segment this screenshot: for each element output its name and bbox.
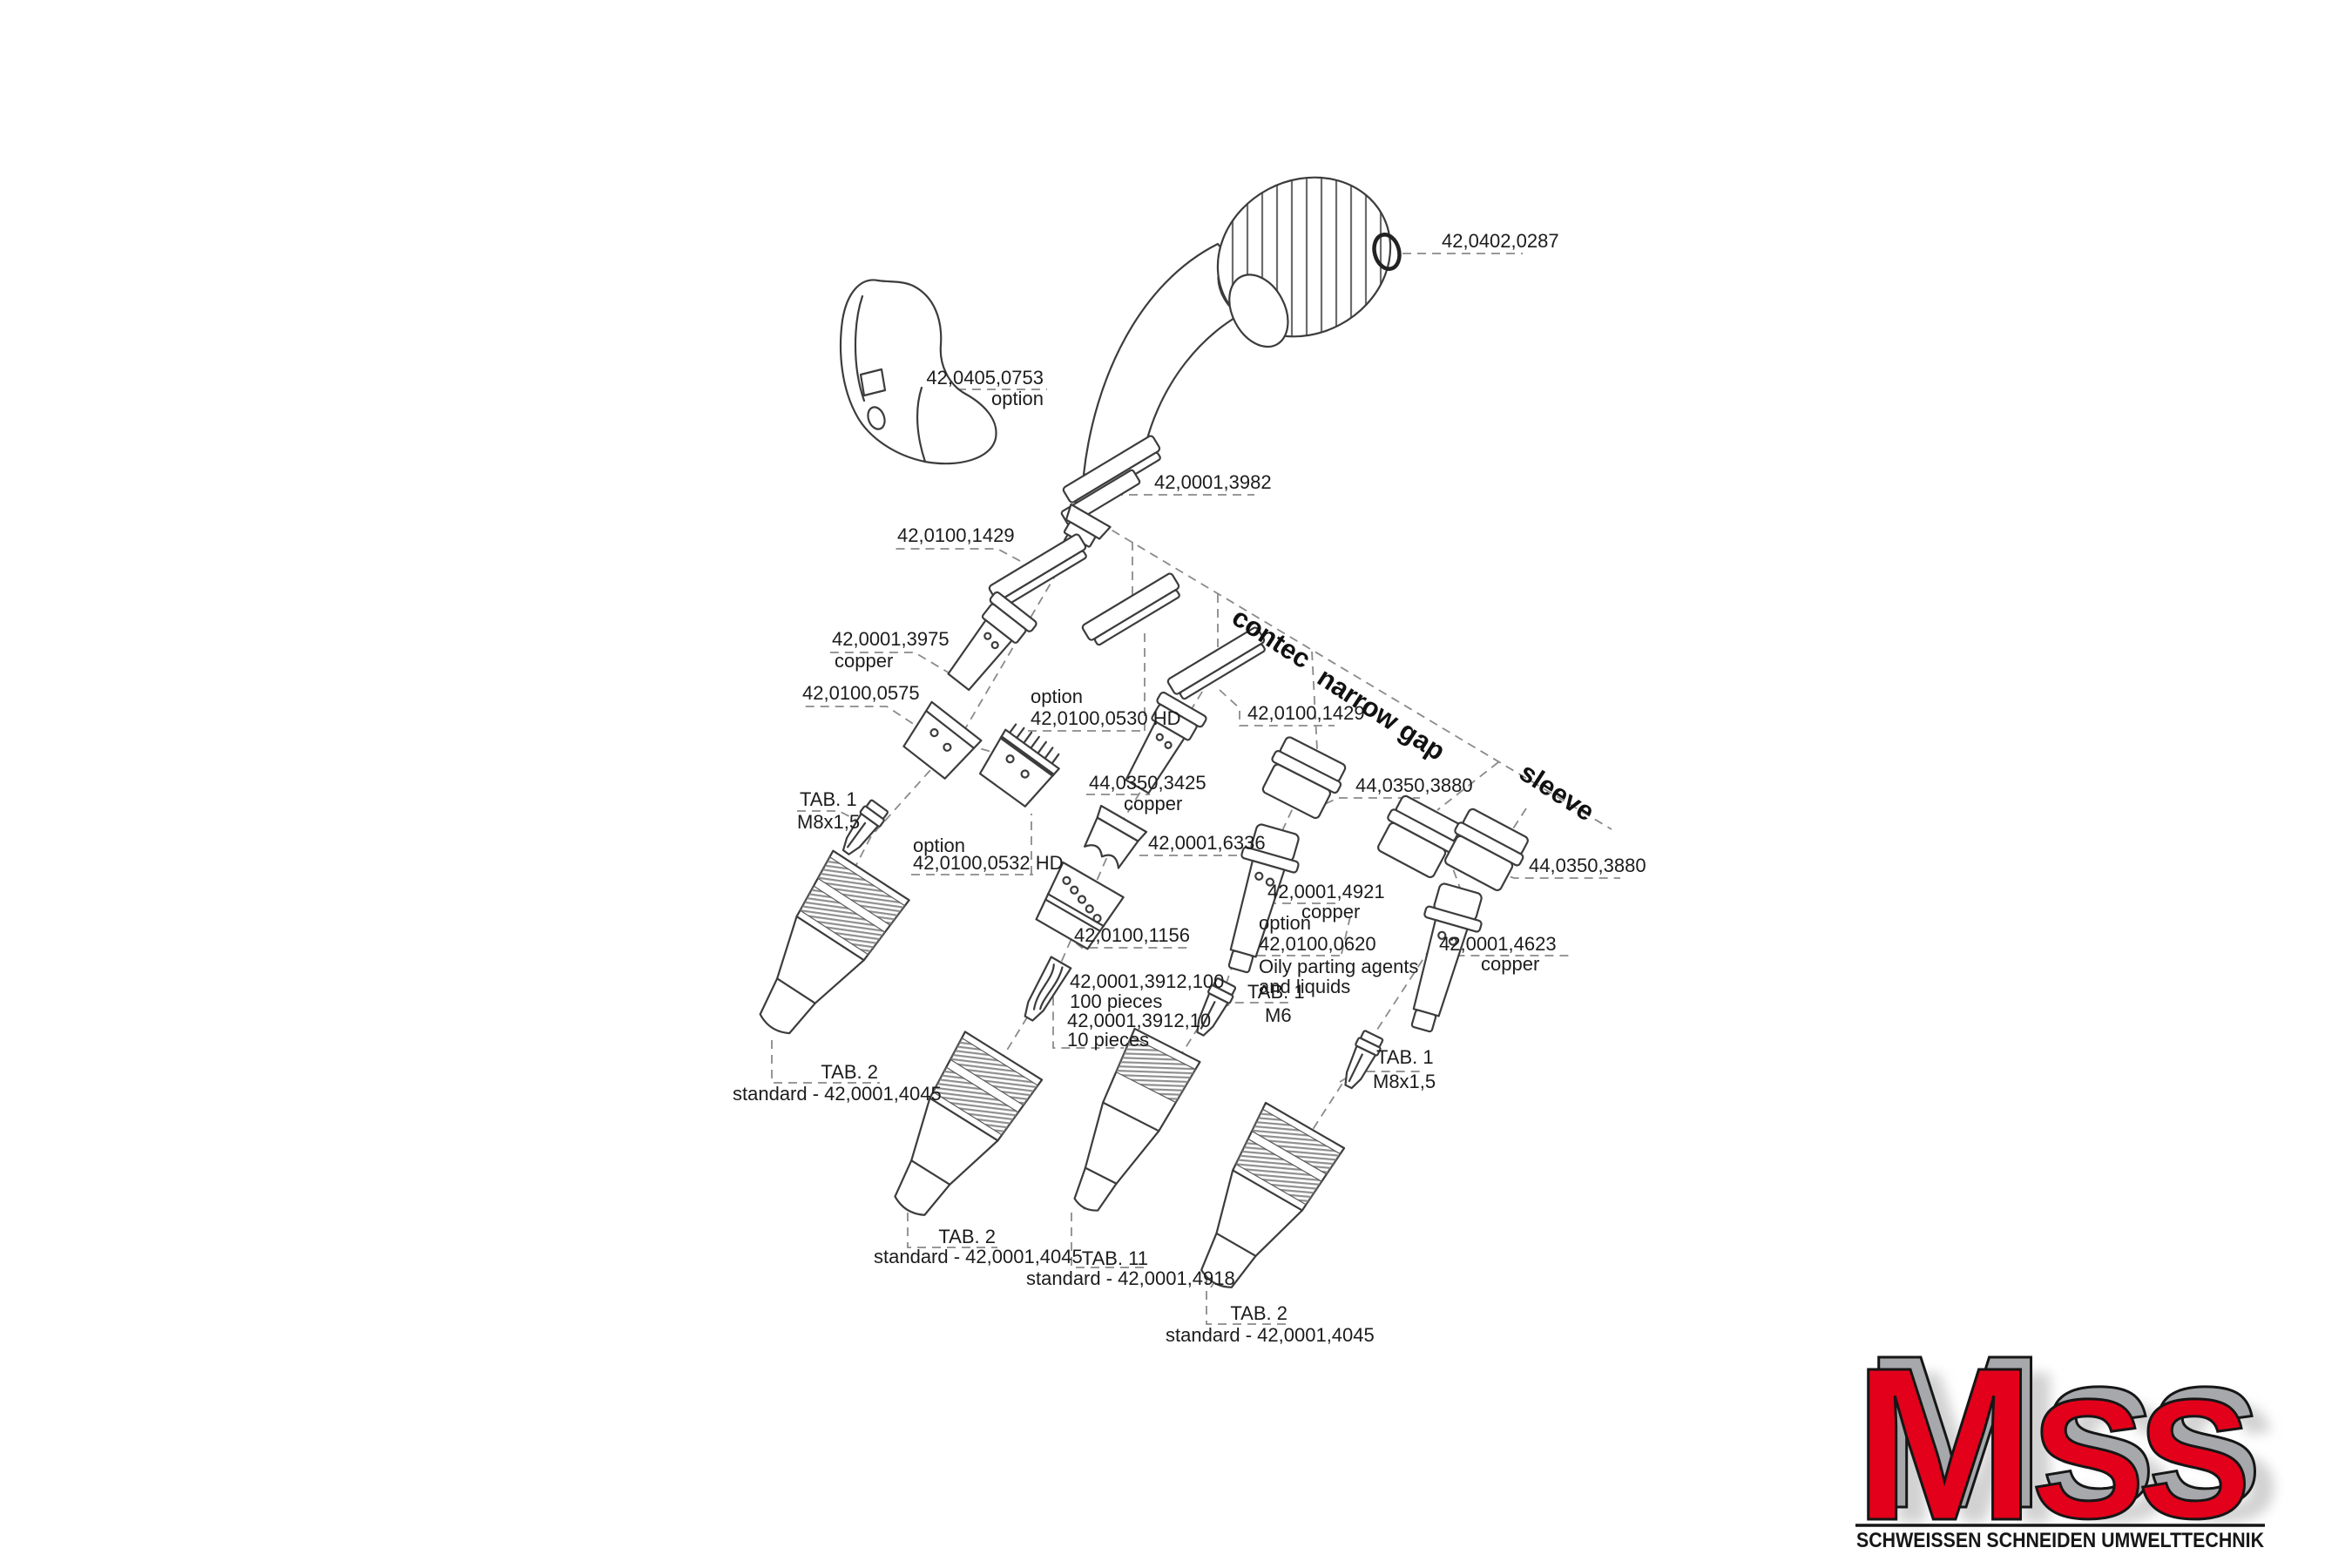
label-nozzle-sleeve: standard - 42,0001,4045	[1166, 1324, 1375, 1346]
label-tab2-contec: TAB. 2	[938, 1226, 996, 1247]
gas-nozzle-contec	[868, 1031, 1042, 1233]
label-tip-holder-ng: 42,0001,4921	[1267, 881, 1385, 902]
sleeve-part-1	[1372, 793, 1465, 881]
label-tip-holder-contec: 44,0350,3425	[1089, 772, 1206, 794]
label-tab1-ng-thread: M6	[1265, 1004, 1292, 1026]
chain-sleeve	[1175, 793, 1532, 1305]
torch-body	[841, 147, 1418, 558]
label-diffusor-hd-0530-option: option	[1031, 686, 1083, 707]
gas-diffusor-standard	[900, 702, 982, 782]
label-tip-holder-std: 42,0001,3975	[832, 628, 950, 650]
label-oily-part: 42,0100,0620	[1259, 933, 1376, 955]
label-tab1-sleeve-thread: M8x1,5	[1373, 1071, 1436, 1092]
label-contact-tip-10-qty: 10 pieces	[1067, 1029, 1149, 1051]
label-nozzle-ng: standard - 42,0001,4918	[1026, 1267, 1235, 1289]
label-diffusor-contec: 42,0100,1156	[1074, 924, 1190, 946]
label-tab1-sleeve: TAB. 1	[1376, 1046, 1434, 1068]
label-neck: 42,0001,3982	[1154, 471, 1272, 493]
chain-contec	[868, 572, 1269, 1233]
insulation-ring-hd-option	[1081, 572, 1184, 648]
label-spatter-guard: 42,0001,6336	[1148, 832, 1266, 854]
label-oily-option: option	[1259, 912, 1311, 934]
tip-holder-standard	[938, 591, 1037, 698]
label-oring: 42,0402,0287	[1442, 230, 1559, 252]
leader-insulation-ring-1	[896, 549, 1033, 568]
label-oily-desc-1: Oily parting agents	[1259, 956, 1418, 977]
gas-diffusor-hd-option	[976, 719, 1067, 810]
label-guard-option: option	[991, 388, 1044, 409]
neck-knob	[1187, 147, 1418, 368]
label-diffusor-hd-0530: 42,0100,0530 HD	[1031, 707, 1180, 729]
sleeve-part-2	[1439, 806, 1532, 894]
label-tab1-std-thread: M8x1,5	[797, 811, 860, 833]
label-tab2-std: TAB. 2	[821, 1061, 878, 1083]
exploded-parts-diagram: 42,0402,0287 42,0405,0753 option 42,0001…	[0, 0, 2352, 1568]
label-tip-holder-sleeve: 42,0001,4623	[1439, 933, 1557, 955]
label-diffusor-hd-0532: 42,0100,0532 HD	[913, 852, 1063, 874]
label-tab1-ng: TAB. 1	[1247, 981, 1305, 1003]
sleeve-narrow-gap	[1257, 734, 1350, 822]
contact-tip-contec	[1019, 957, 1071, 1024]
logo-tagline: SCHWEISSEN SCHNEIDEN UMWELTTECHNIK	[1856, 1529, 2265, 1552]
label-tab1-std: TAB. 1	[800, 788, 857, 810]
label-sleeve-3880-a: 44,0350,3880	[1355, 774, 1473, 796]
mss-logo: M SS M SS M SS SCHWEISSEN SCHNEIDEN UMWE…	[1854, 1310, 2274, 1568]
label-tip-holder-sleeve-material: copper	[1481, 953, 1539, 975]
label-nozzle-std: standard - 42,0001,4045	[733, 1083, 942, 1105]
axis-branch-narrow-gap	[1312, 652, 1317, 749]
label-contact-tip-100: 42,0001,3912,100	[1070, 970, 1224, 992]
label-tab2-sleeve: TAB. 2	[1230, 1302, 1288, 1324]
label-diffusor-std: 42,0100,0575	[802, 682, 920, 704]
label-tip-holder-std-material: copper	[835, 650, 893, 672]
label-nozzle-contec: standard - 42,0001,4045	[874, 1246, 1083, 1267]
gas-nozzle-narrow-gap	[1051, 1029, 1200, 1225]
label-insulation-ring-1: 42,0100,1429	[897, 524, 1015, 546]
gas-nozzle-standard	[734, 851, 909, 1053]
chain-standard	[734, 533, 1091, 1052]
leader-diffusor-std	[802, 706, 925, 732]
series-label-sleeve: sleeve	[1514, 757, 1600, 828]
label-guard: 42,0405,0753	[926, 367, 1044, 389]
label-tab11-ng: TAB. 11	[1082, 1247, 1148, 1269]
label-sleeve-3880-b: 44,0350,3880	[1529, 855, 1646, 876]
spatter-guard	[1078, 806, 1146, 871]
label-tip-holder-contec-material: copper	[1124, 793, 1182, 814]
